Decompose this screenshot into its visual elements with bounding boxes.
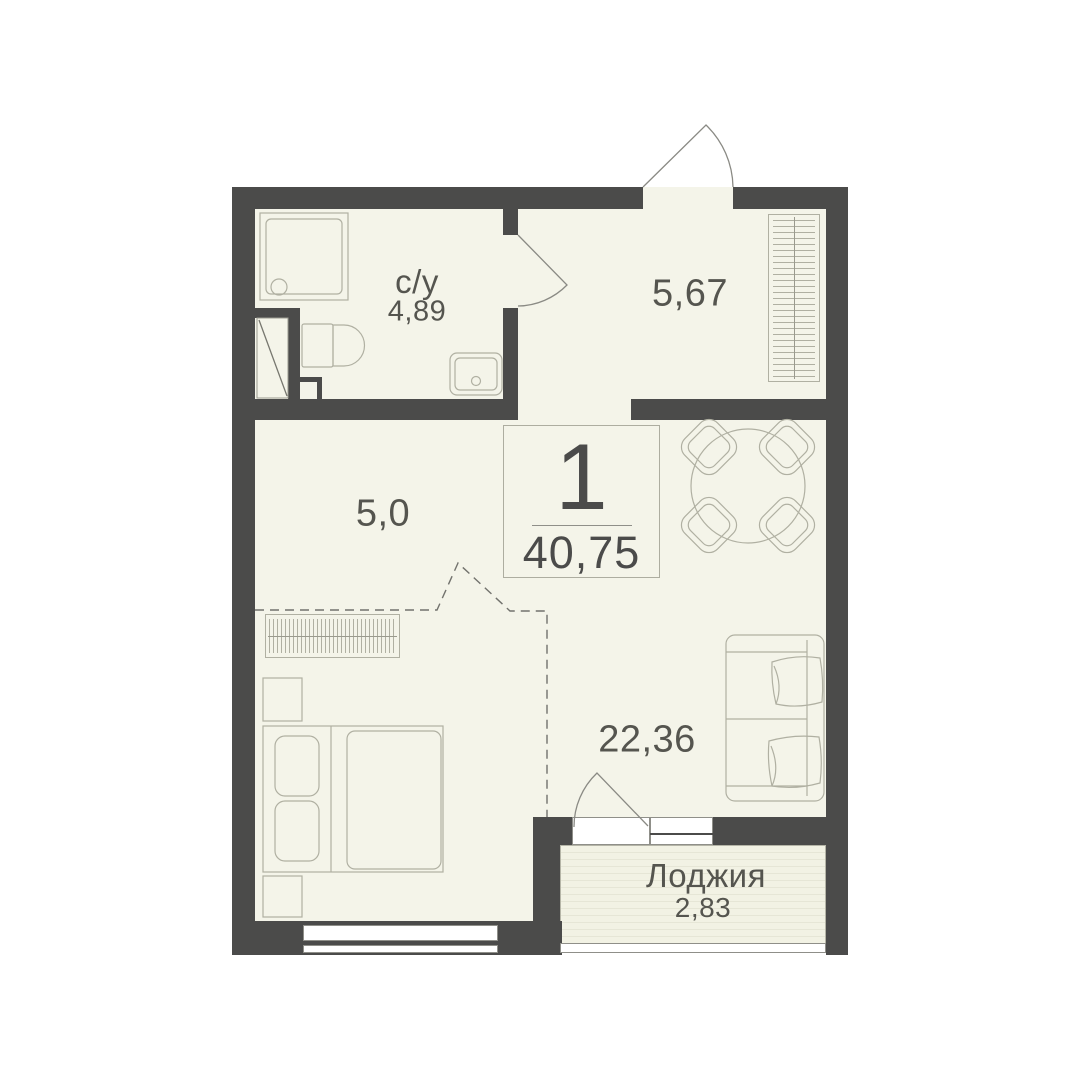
corridor-area: 5,0: [356, 493, 410, 536]
sink: [450, 353, 502, 395]
dining-table: [691, 429, 805, 543]
nightstand: [263, 876, 302, 917]
chair: [676, 414, 741, 479]
loggia-label: Лоджия: [646, 857, 766, 895]
shower: [260, 213, 348, 300]
sofa-pillow: [772, 657, 823, 706]
chair: [754, 414, 819, 479]
nightstand: [263, 678, 302, 721]
balcony-door-swing: [574, 773, 648, 827]
total-area: 40,75: [504, 530, 659, 576]
rooms-count: 1: [504, 432, 659, 522]
toilet: [302, 324, 365, 367]
sofa-pillow: [768, 736, 821, 787]
apartment-info-box: 1 40,75: [503, 425, 660, 578]
loggia-area: 2,83: [675, 892, 732, 924]
chair: [754, 492, 819, 557]
blanket: [347, 731, 441, 869]
duct-shaft: [257, 318, 288, 398]
pillow: [275, 736, 319, 796]
bathroom-area: 4,89: [388, 296, 446, 329]
floor-plan: с/у 4,89 5,67 5,0 22,36 Лоджия 2,83 1 40…: [0, 0, 1080, 1080]
chair: [676, 492, 741, 557]
living-room-area: 22,36: [598, 719, 696, 762]
zone-dashed-line: [255, 563, 547, 817]
bed: [263, 726, 443, 872]
hallway-area: 5,67: [652, 273, 728, 316]
pillow: [275, 801, 319, 861]
entrance-door-swing: [643, 125, 733, 187]
sofa: [726, 635, 824, 801]
bathroom-door-swing: [518, 235, 567, 306]
